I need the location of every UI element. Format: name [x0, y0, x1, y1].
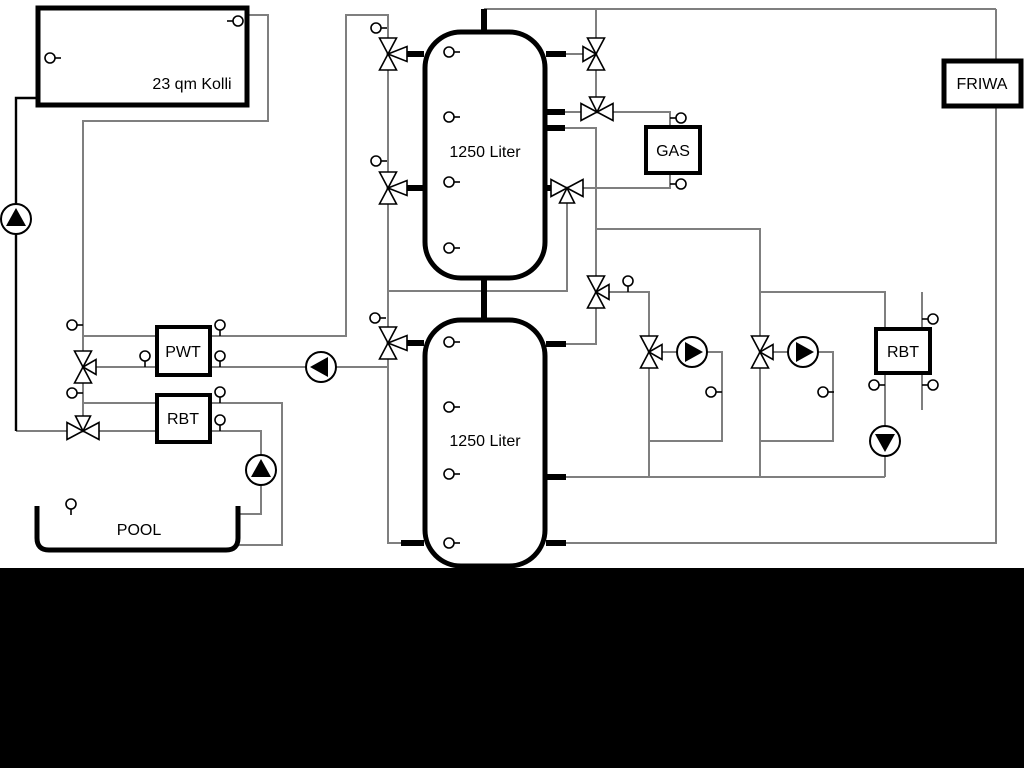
pump-right-icon [677, 337, 707, 367]
pump-up-icon [1, 204, 31, 234]
sensor-bulb [444, 47, 454, 57]
sensor-bulb [370, 313, 380, 323]
sensor-bulb [215, 415, 225, 425]
sensor-bulb [818, 387, 828, 397]
buffer-tank-lower: 1250 Liter [425, 320, 545, 566]
sensor-bulb [140, 351, 150, 361]
schematic-page: 23 qm Kolli 1250 Liter 1250 Liter GAS FR… [0, 0, 1024, 768]
pump-left-icon [306, 352, 336, 382]
pwt-heat-exchanger: PWT [157, 327, 210, 375]
sensor-bulb [444, 402, 454, 412]
buffer-tank-upper-label: 1250 Liter [449, 144, 521, 161]
sensor-bulb [66, 499, 76, 509]
sensor-bulb [45, 53, 55, 63]
sensor-bulb [371, 156, 381, 166]
sensor-bulb [444, 469, 454, 479]
right-rbt-heat-exchanger: RBT [876, 329, 930, 373]
sensor-bulb [869, 380, 879, 390]
sensor-bulb [371, 23, 381, 33]
pool-rbt-label: RBT [167, 411, 199, 428]
gas-boiler-label: GAS [656, 143, 690, 160]
gas-boiler: GAS [646, 127, 700, 173]
buffer-tank-upper: 1250 Liter [425, 32, 545, 278]
sensor-bulb [444, 337, 454, 347]
pwt-label: PWT [165, 344, 201, 361]
friwa-station: FRIWA [944, 61, 1021, 106]
solar-collector: 23 qm Kolli [38, 8, 247, 105]
sensor-bulb [444, 538, 454, 548]
friwa-label: FRIWA [957, 76, 1008, 93]
sensor-bulb [706, 387, 716, 397]
sensor-bulb [67, 388, 77, 398]
pool-label: POOL [117, 522, 162, 539]
sensor-bulb [676, 179, 686, 189]
sensor-bulb [623, 276, 633, 286]
sensor-bulb [215, 387, 225, 397]
sensor-bulb [928, 380, 938, 390]
sensor-bulb [928, 314, 938, 324]
hydraulic-schematic-canvas: 23 qm Kolli 1250 Liter 1250 Liter GAS FR… [0, 0, 1024, 768]
sensor-bulb [233, 16, 243, 26]
pump-down-icon [870, 426, 900, 456]
sensor-bulb [444, 112, 454, 122]
sensor-bulb [215, 351, 225, 361]
pool-rbt-heat-exchanger: RBT [157, 395, 210, 442]
sensor-bulb [67, 320, 77, 330]
right-rbt-label: RBT [887, 344, 919, 361]
pump-right-icon [788, 337, 818, 367]
solar-collector-label: 23 qm Kolli [152, 76, 231, 93]
buffer-tank-lower-label: 1250 Liter [449, 433, 521, 450]
bottom-black-bar [0, 568, 1024, 768]
sensor-bulb [444, 177, 454, 187]
sensor-bulb [444, 243, 454, 253]
pump-up-icon [246, 455, 276, 485]
sensor-bulb [215, 320, 225, 330]
sensor-bulb [676, 113, 686, 123]
